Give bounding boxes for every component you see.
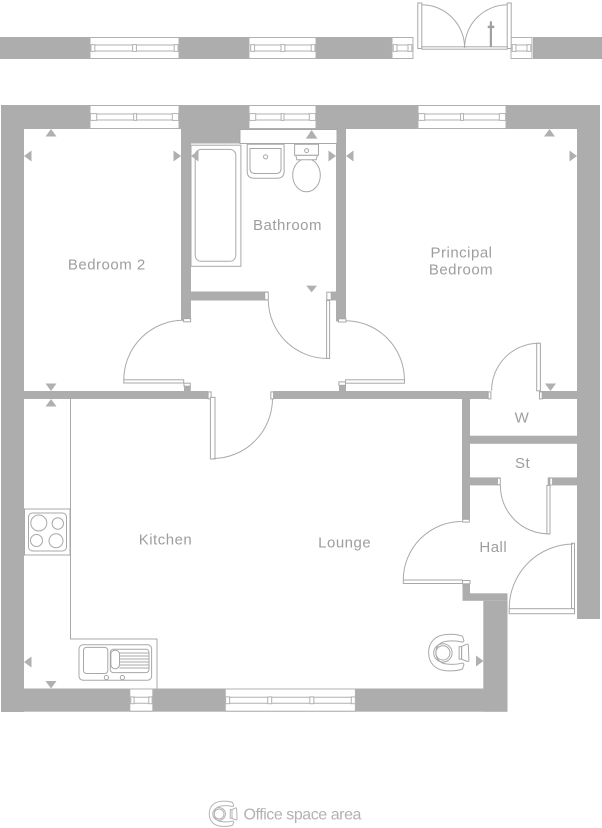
svg-text:Hall: Hall — [479, 539, 507, 556]
svg-text:Office space area: Office space area — [244, 807, 362, 824]
svg-text:Principal: Principal — [430, 244, 492, 261]
svg-text:Bedroom: Bedroom — [429, 262, 493, 279]
svg-text:St: St — [515, 455, 531, 472]
svg-text:Bedroom 2: Bedroom 2 — [68, 256, 146, 273]
svg-text:Lounge: Lounge — [318, 534, 371, 551]
svg-text:W: W — [515, 410, 530, 427]
svg-text:Kitchen: Kitchen — [139, 531, 193, 548]
svg-text:Bathroom: Bathroom — [253, 217, 322, 234]
